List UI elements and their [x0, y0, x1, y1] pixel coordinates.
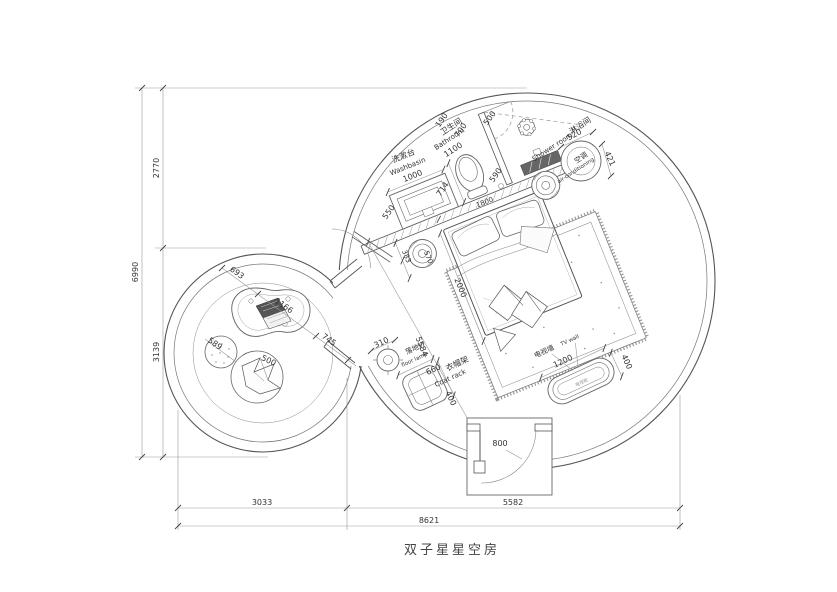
- dim-height-bottom: 3139: [152, 342, 161, 362]
- label-floor-lamp-en: floor lamp: [401, 351, 429, 368]
- dim-bottom-seg1: 3033: [252, 498, 272, 507]
- dim-entry-door: 800: [492, 439, 507, 448]
- dim-tv-depth: 400: [619, 353, 634, 371]
- suite-group: 1800 洗漱台 Washbasin 1000: [327, 81, 681, 472]
- dim-overall-width: 8621: [419, 516, 439, 525]
- column-icon: [499, 184, 504, 189]
- dim-lamp: 310: [373, 335, 391, 350]
- entry-vestibule: 800: [467, 418, 552, 495]
- dim-421: 421: [603, 150, 618, 168]
- floor-plan-drawing: 1800 洗漱台 Washbasin 1000: [0, 0, 837, 592]
- floor-lamp: [373, 345, 403, 375]
- dim-height-top: 2770: [152, 158, 161, 178]
- dim-desk-seg1: 693: [228, 265, 246, 281]
- shower-head-icon: [516, 116, 538, 139]
- dim-overall-height: 6990: [131, 262, 140, 282]
- bathroom-door-leaf: [484, 101, 511, 112]
- dim-bottom-seg2: 5582: [503, 498, 523, 507]
- toilet: [450, 150, 491, 201]
- kidney-desk: [232, 288, 310, 336]
- drawing-title: 双子星星空房: [404, 542, 500, 558]
- floor-plan-canvas: 1800 洗漱台 Washbasin 1000: [0, 0, 837, 592]
- dim-bed-width: 1800: [475, 195, 495, 209]
